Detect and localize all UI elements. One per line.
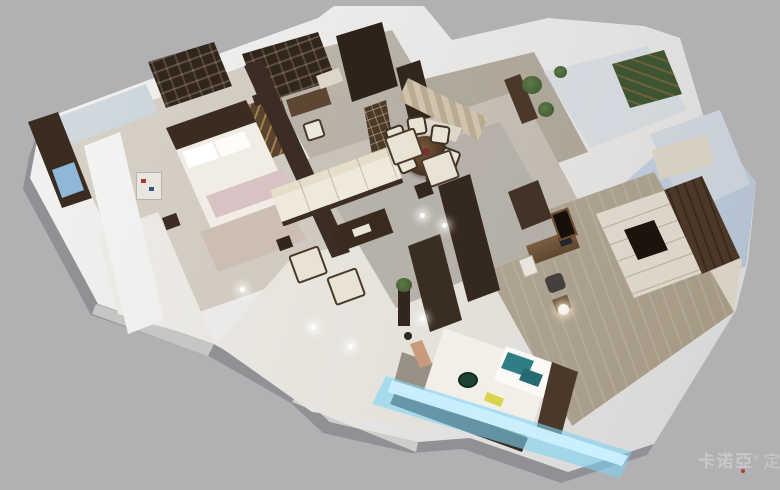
dining-chair (429, 124, 450, 145)
seated-person-head (404, 332, 412, 340)
downlight (420, 316, 425, 321)
watermark-brand: 卡诺亞 (698, 452, 754, 471)
downlight (420, 213, 425, 218)
downlight (240, 287, 245, 292)
watermark-registered-mark: ® (754, 453, 760, 462)
bonsai-plant (396, 278, 412, 292)
downlight (348, 344, 353, 349)
watermark-suffix: 定制家 (763, 452, 780, 471)
decor-tray (458, 372, 478, 388)
plant-stand (398, 288, 410, 326)
bedroom2-lamp (558, 304, 569, 315)
watermark-red-dot (741, 469, 745, 473)
potted-plant (538, 102, 554, 117)
potted-plant (522, 76, 542, 94)
master-open-shelf (136, 172, 162, 200)
downlight (442, 223, 447, 228)
potted-plant (554, 66, 567, 78)
apartment-3d-render: 卡诺亞®定制家 (0, 0, 780, 490)
downlight (311, 325, 316, 330)
watermark-text: 卡诺亞®定制家 (698, 447, 780, 472)
